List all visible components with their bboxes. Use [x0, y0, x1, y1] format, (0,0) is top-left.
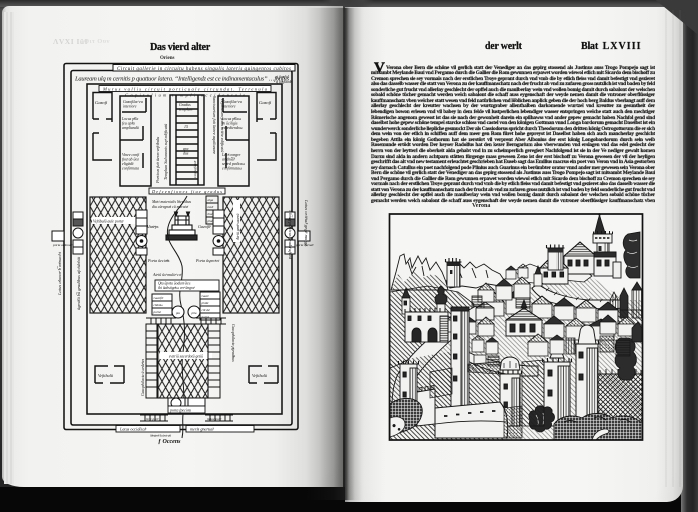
svg-text:medͤ: medͤ	[208, 205, 214, 209]
svg-text:Gazoͤ: Gazoͤ	[202, 294, 210, 298]
svg-text:ūctae portͤ: ūctae portͤ	[207, 417, 222, 421]
svg-text:diu cŭregnaͤt cū muratuͤ: diu cŭregnaͤt cū muratuͤ	[152, 205, 189, 209]
svg-text:Latus occidētalͤ: Latus occidētalͤ	[119, 427, 147, 432]
svg-text:Gazophilacia pͤgradͤbus: Gazophilacia pͤgradͤbus	[231, 324, 236, 362]
svg-text:sepͤed pedicaω: sepͤed pedicaω	[222, 162, 245, 166]
svg-text:Gazofi: Gazofi	[95, 100, 108, 105]
svg-text:Latus aͤlonarͤ b͡ mͤtnacht: Latus aͤlonarͤ b͡ mͤtnacht	[57, 251, 62, 296]
svg-text:q̇ loquedo: q̇ loquedo	[276, 79, 293, 84]
svg-text:confirmata: confirmata	[122, 167, 139, 171]
svg-text:ciū duͤ: ciū duͤ	[202, 308, 211, 312]
svg-text:porta fpecioͤa: porta fpecioͤa	[169, 409, 191, 413]
svg-text:sͤ atriū sacerdotū getiū: sͤ atriū sacerdotū getiū	[169, 355, 203, 359]
svg-text:confirmataω: confirmataω	[222, 167, 242, 171]
svg-text:arͤ dni͡alͤ: arͤ dni͡alͤ	[222, 157, 235, 162]
svg-text:ibi ūabstigeͤtω verͤ ūngraͤ: ibi ūabstigeͤtω verͤ ūngraͤ	[158, 286, 195, 290]
svg-text:alga: alga	[208, 198, 214, 202]
svg-text:Lauream ulq m cernitis p quatt: Lauream ulq m cernitis p quattuor latera…	[74, 76, 289, 83]
svg-text:Defcenfiones fiue gradus: Defcenfiones fiue gradus	[151, 189, 222, 194]
svg-text:phaͤ: phaͤ	[207, 219, 214, 223]
svg-text:Gazofilͤ: Gazofilͤ	[198, 224, 211, 229]
svg-text:15: 15	[184, 125, 188, 129]
svg-text:cōduͤtω: cōduͤtω	[154, 303, 164, 307]
svg-text:portaͤ: portaͤ	[153, 310, 162, 314]
svg-text:Gazofi: Gazofi	[259, 100, 272, 105]
svg-text:Templum Salomonis supͤ edifica: Templum Salomonis supͤ edificatū	[163, 124, 168, 180]
svg-text:pta: pta	[175, 311, 180, 315]
svg-text:Atriū gentͤ sacerū: Atriū gentͤ sacerū	[236, 214, 240, 241]
svg-text:pila: pila	[191, 311, 197, 315]
svg-text:Latus oriētalͤ gegē morgē: Latus oriētalͤ gegē morgē	[304, 199, 309, 247]
svg-text:Gradus: Gradus	[179, 103, 191, 107]
svg-text:Atriū ūoͤ mulieͤ coͤ: Atriū ūoͤ mulieͤ coͤ	[152, 272, 182, 277]
svg-text:5 b͡tagͤ porticus graduͤ afcē: 5 b͡tagͤ porticus graduͤ afcēd	[288, 210, 293, 260]
svg-text:Muͤri materialis liͤientibus: Muͤri materialis liͤientibus	[151, 200, 192, 204]
svg-text:templum: templum	[179, 108, 193, 112]
svg-text:Gazophilacia ū ardeͤtes: Gazophilacia ū ardeͤtes	[140, 358, 145, 396]
svg-text:ftozͤ ab ūoz: ftozͤ ab ūoz	[122, 158, 139, 162]
svg-text:porta aqͤlonarͤ: porta aqͤlonarͤ	[52, 243, 73, 247]
svg-text:meriͤs gͤnerͤualͤ: meriͤs gͤnerͤualͤ	[190, 427, 214, 432]
svg-text:Porta ūeciaͤiͤs: Porta ūeciaͤiͤs	[147, 258, 170, 263]
svg-text:eligēdā: eligēdā	[122, 162, 134, 166]
svg-text:philaͤ: philaͤ	[201, 301, 210, 305]
svg-text:Circuit gallerie in circuitu h: Circuit gallerie in circuitu habens sing…	[117, 67, 291, 72]
svg-text:Sanctuarium fuit latere aquilo: Sanctuarium fuit latere aquilonare	[212, 96, 217, 154]
svg-text:Gazofilacͤ ea: Gazofilacͤ ea	[123, 100, 143, 104]
svg-text:Qͤta ūpoͤta ūodumͤ ētes: Qͤta ūpoͤta ūodumͤ ētes	[158, 282, 191, 286]
svg-text:feu aplͤa: feu aplͤa	[122, 122, 135, 126]
svg-text:ūgestͤlū b͡ū gradibus afcēde: ūgestͤlū b͡ū gradibus afcēdebāt	[76, 256, 81, 310]
svg-text:Porticus fuit ūerm veftibulu: Porticus fuit ūerm veftibulu	[155, 137, 160, 184]
svg-text:ampliandū: ampliandū	[122, 126, 139, 130]
svg-text:Lectͤ congre: Lectͤ congre	[221, 153, 241, 157]
svg-text:Veftibulū: Veftibulū	[252, 373, 267, 378]
svg-text:interiore: interiore	[123, 105, 137, 109]
svg-text:ūcte portͤ: ūcte portͤ	[146, 417, 159, 421]
svg-text:Veftibulū: Veftibulū	[98, 373, 113, 378]
svg-text:ūtͤmͤpoͤtͤ ūabstraͤd: ūtͤmͤpoͤtͤ ūabstraͤd	[150, 434, 171, 438]
svg-text:Veftibulū aule portaͤ: Veftibulū aule portaͤ	[93, 220, 124, 224]
svg-text:Vinee confi: Vinee confi	[122, 153, 139, 157]
svg-text:dus: dus	[183, 152, 189, 156]
svg-text:veftibulum fcdͤm oriēte edifi: veftibulum fcdͤm oriēte edificatū	[220, 99, 225, 152]
svg-text:Gazofilͤ: Gazofilͤ	[154, 296, 164, 300]
svg-text:Locus pͤlla: Locus pͤlla	[121, 117, 138, 121]
svg-text:Murus vallis circuit porticual: Murus vallis circuit porticuale circunda…	[102, 87, 268, 92]
svg-text:Capregfamdͤ: Capregfamdͤ	[193, 160, 197, 178]
svg-text:ƒ Occens: ƒ Occens	[158, 439, 181, 445]
svg-text:Porta ūspecͤosͤ: Porta ūspecͤosͤ	[195, 258, 220, 263]
svg-text:gra: gra	[183, 147, 188, 151]
